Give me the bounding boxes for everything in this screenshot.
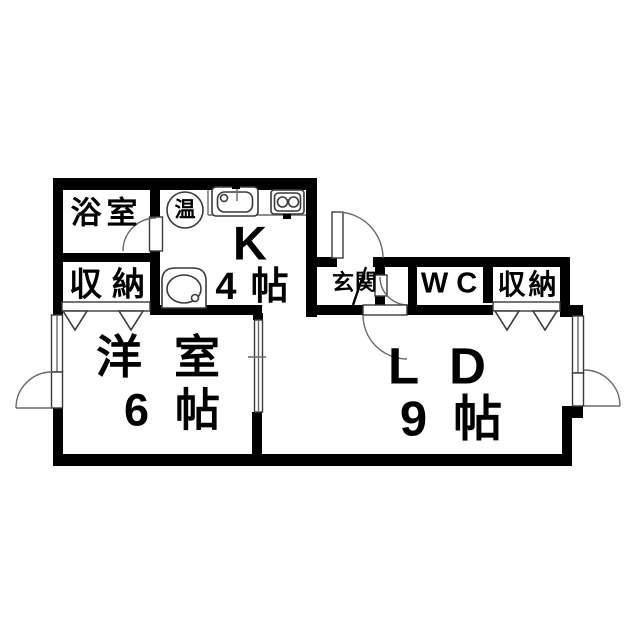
storage-left-front (62, 302, 150, 311)
western-room-label: 洋室 (64, 334, 252, 380)
bathroom-label: 浴室 (66, 198, 143, 229)
right-exterior-door-leaf (573, 373, 584, 406)
wall-right-step-vertical (562, 418, 572, 454)
partition-top-cap (253, 313, 263, 320)
left-exterior-door-leaf (52, 372, 63, 408)
wall-under-wc (407, 305, 493, 315)
stove-burner-left (278, 197, 288, 207)
kitchen-label: K (233, 220, 267, 267)
wall-top (53, 178, 317, 190)
wall-bottom (53, 454, 572, 466)
wall-under-entrance (306, 305, 363, 315)
floor-plan: 浴室 収納 温 K 4帖 玄関 WC 収納 洋室 6帖 LD 9帖 (0, 0, 640, 640)
wall-bath-storage-divider (62, 253, 160, 262)
left-exterior-door-arc (16, 372, 52, 408)
sink-wall-tap (232, 183, 240, 189)
wash-basin-drain (192, 295, 199, 302)
stove-knob (283, 214, 291, 219)
wall-middle-band-top (373, 257, 570, 267)
wc-label: WC (413, 270, 485, 299)
entrance-label: 玄関 (332, 272, 378, 294)
stove-burner-right (289, 197, 299, 207)
storage-right-front (493, 302, 560, 311)
western-room-size-label: 6帖 (98, 388, 246, 433)
storage-left-label: 収納 (59, 268, 155, 301)
storage-left-fold-mark-1 (63, 311, 87, 330)
entrance-door-arc (337, 212, 383, 258)
living-dining-size-label: 9帖 (374, 396, 528, 445)
wall-kitchen-right (306, 178, 317, 317)
wall-storage-right-right (560, 257, 570, 305)
ld-door-leaf (363, 305, 407, 315)
storage-right-fold-mark-2 (533, 311, 557, 330)
sink-faucet-base (221, 195, 228, 202)
wall-bath-right-lower (150, 251, 160, 262)
partition-bottom-wall (252, 412, 262, 454)
wall-bath-right-upper (150, 188, 160, 218)
floor-plan-drawing (0, 0, 640, 640)
living-dining-label: LD (358, 341, 516, 392)
entrance-door-leaf (332, 212, 343, 258)
bathroom-door-leaf (150, 217, 163, 251)
storage-left-fold-mark-2 (119, 311, 143, 330)
storage-right-label: 収納 (494, 271, 559, 299)
kitchen-size-label: 4帖 (201, 268, 302, 306)
right-exterior-door-arc (584, 370, 620, 406)
wall-right-corner-jog (560, 305, 583, 317)
water-heater-label: 温 (175, 200, 196, 221)
wall-right-step-horizontal (562, 406, 583, 418)
storage-right-fold-mark-1 (495, 311, 519, 330)
